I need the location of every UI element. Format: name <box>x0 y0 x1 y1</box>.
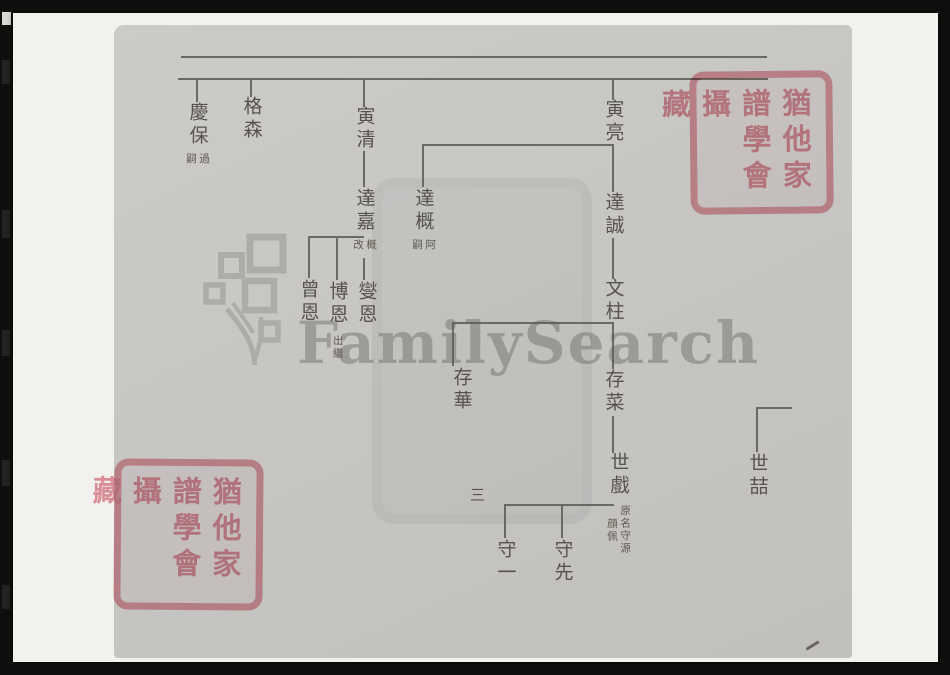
tree-line <box>612 144 614 192</box>
person-annotation: 概改 <box>351 237 377 254</box>
seal-column-middle: 譜學會 <box>734 88 775 197</box>
tree-line <box>612 79 614 100</box>
tree-line <box>561 504 563 538</box>
seal-column-right: 猶他家 <box>204 476 245 593</box>
tree-node-dajia: 達嘉概改 <box>350 188 378 254</box>
person-name: 寅亮 <box>604 99 623 145</box>
page-number: 三 <box>470 484 487 505</box>
person-name: 寅清 <box>355 106 374 152</box>
archive-seal-top-right: 猶他家 譜學會 攝藏 <box>689 70 833 214</box>
person-name: 世戲 <box>609 452 628 498</box>
person-name: 慶保 <box>188 102 207 148</box>
person-name: 達誠 <box>604 192 623 238</box>
person-name: 守先 <box>553 539 572 585</box>
familysearch-tree-logo-icon <box>203 233 305 365</box>
tree-node-shouxian: 守先 <box>548 539 576 585</box>
familysearch-watermark-text: FamilySearch <box>297 314 760 372</box>
tree-line <box>422 144 614 146</box>
archive-seal-bottom-left: 猶他家 譜學會 攝藏 <box>113 458 263 610</box>
tree-line <box>504 504 506 538</box>
tree-line <box>308 236 310 278</box>
person-name: 世喆 <box>748 453 767 499</box>
tree-node-dacheng: 達誠 <box>599 192 627 238</box>
tree-line <box>178 78 768 80</box>
tree-line <box>612 238 614 279</box>
tree-node-yinqing: 寅清 <box>350 106 378 152</box>
person-annotation: 阿嗣 <box>410 237 436 254</box>
seal-column-left: 攝藏 <box>84 475 165 593</box>
tree-line <box>363 79 365 107</box>
seal-column-right: 猶他家 <box>774 87 815 196</box>
person-name: 達嘉 <box>355 188 374 234</box>
tree-line <box>756 407 758 452</box>
person-annotation: 過嗣 <box>184 151 210 168</box>
tree-line <box>181 56 767 58</box>
tree-line <box>504 504 614 506</box>
tree-node-gesen: 格森 <box>237 96 265 142</box>
tree-node-yinliang: 寅亮 <box>599 99 627 145</box>
tree-node-qingbao: 慶保過嗣 <box>183 102 211 168</box>
tree-node-shouyi: 守一 <box>491 539 519 585</box>
seal-column-middle: 譜學會 <box>164 476 205 593</box>
tree-line <box>196 79 198 102</box>
tree-line <box>612 416 614 453</box>
person-name: 達概 <box>414 188 433 234</box>
tree-line <box>250 79 252 97</box>
seal-column-left: 攝藏 <box>654 88 735 198</box>
person-name: 守一 <box>496 539 515 585</box>
tree-line <box>756 407 792 409</box>
tree-node-shixi: 世戲原名守源顔佩 <box>604 452 632 559</box>
tree-node-dagai: 達概阿嗣 <box>409 188 437 254</box>
film-frame: { "page": { "number_label": "三" }, "wate… <box>0 0 950 675</box>
tree-line <box>422 144 424 187</box>
tree-line <box>363 258 365 280</box>
tree-node-shizhe: 世喆 <box>743 453 771 499</box>
tree-line <box>363 151 365 187</box>
person-annotation: 原名守源顔佩 <box>605 501 631 559</box>
tree-line <box>336 236 338 280</box>
person-name: 格森 <box>242 96 261 142</box>
